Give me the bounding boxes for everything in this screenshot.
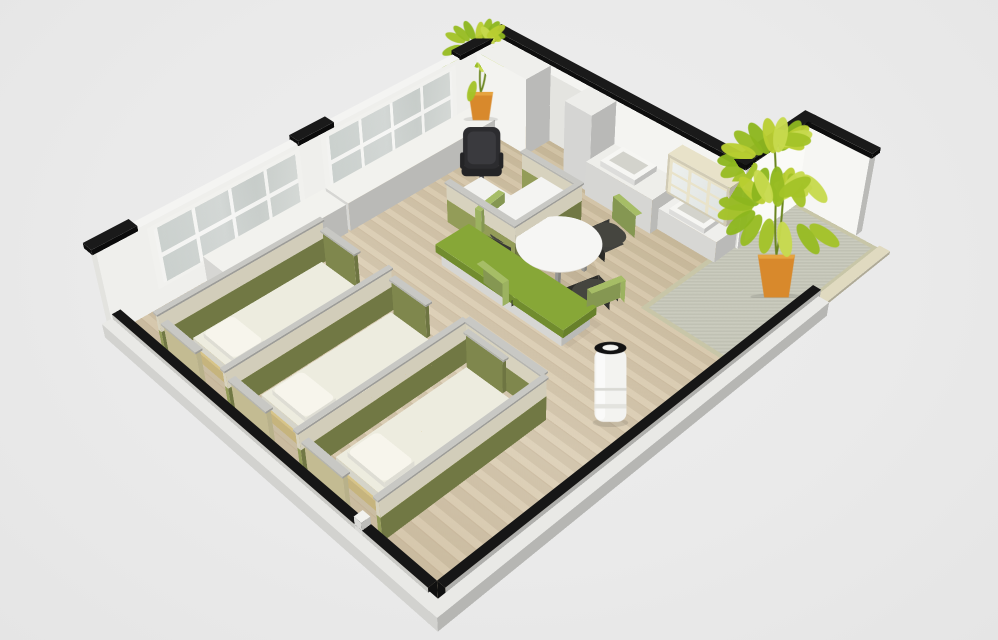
floorplan-render-stage (0, 0, 998, 640)
table-chair-west-face (502, 280, 509, 306)
wardrobe-tall-face (526, 66, 551, 155)
viewport (0, 0, 998, 640)
plant-large-sprite (708, 108, 845, 298)
air-purifier-sprite (590, 335, 631, 428)
